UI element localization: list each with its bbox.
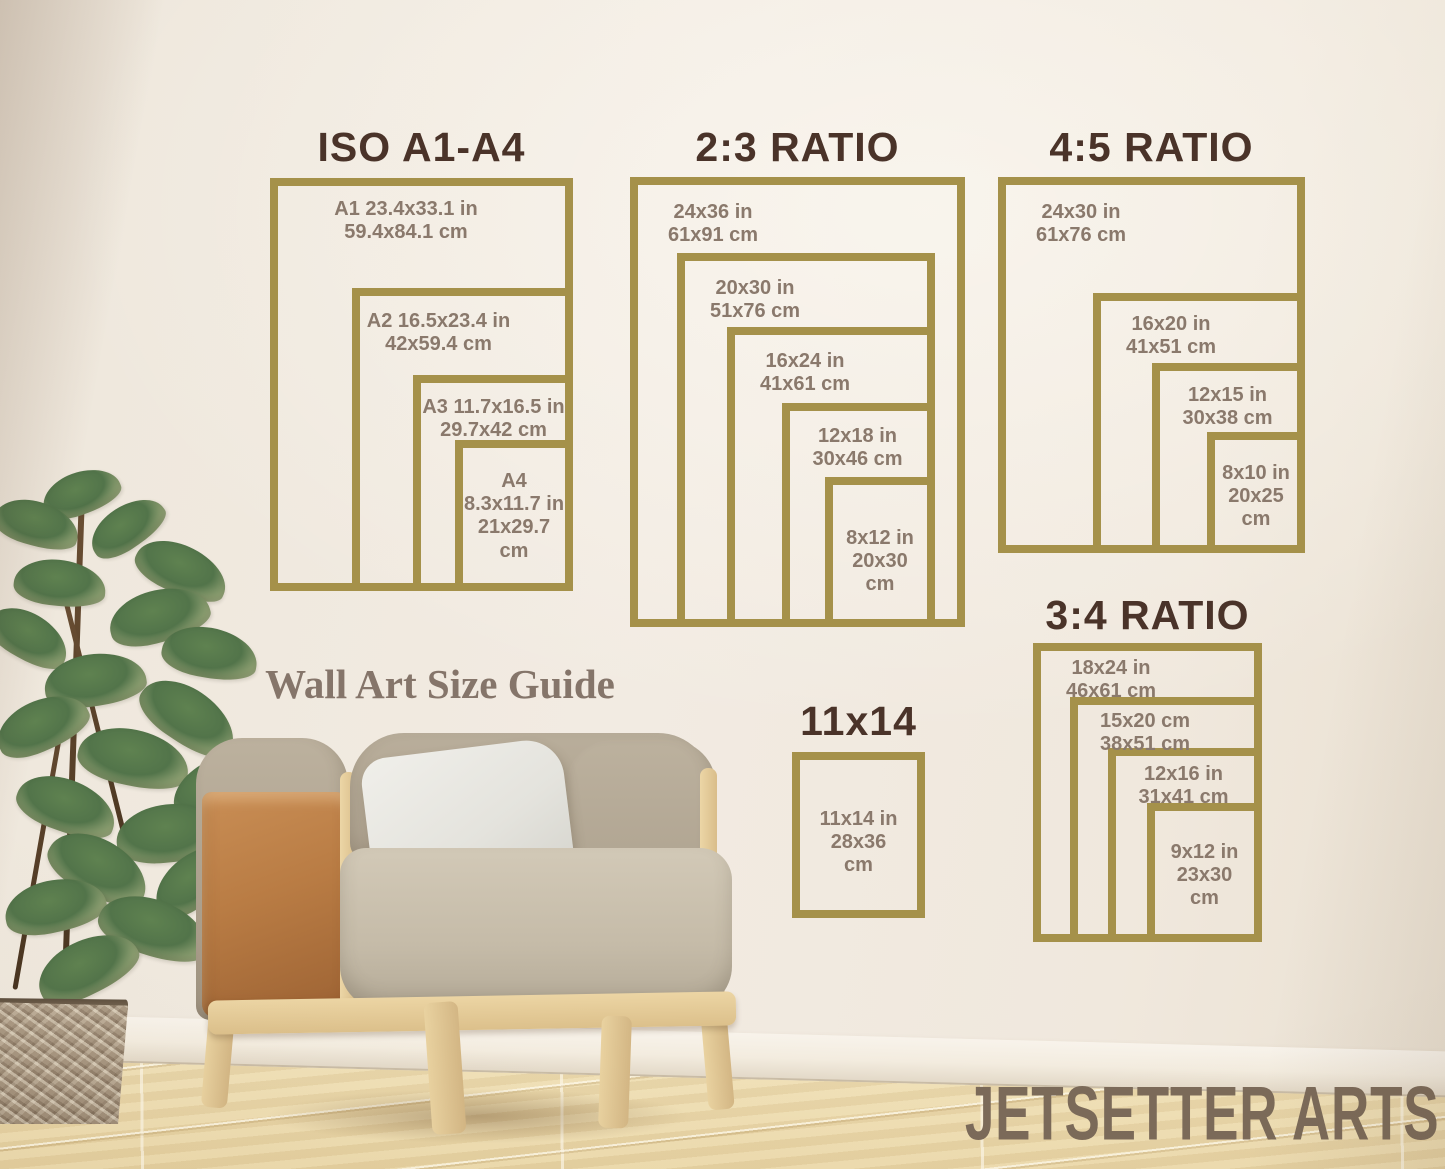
size-label-line: 46x61 cm bbox=[1046, 680, 1176, 703]
size-label-16x20: 16x20 in 41x51 cm bbox=[1106, 313, 1236, 359]
size-label-9x12: 9x12 in 23x30 cm bbox=[1149, 841, 1260, 911]
size-label-12x15: 12x15 in 30x38 cm bbox=[1160, 384, 1295, 430]
size-label-a4: A4 8.3x11.7 in 21x29.7 cm bbox=[457, 470, 571, 563]
size-label-line: cm bbox=[1149, 887, 1260, 910]
size-label-line: A3 11.7x16.5 in bbox=[416, 396, 571, 419]
size-label-15x20: 15x20 cm 38x51 cm bbox=[1080, 710, 1210, 756]
size-label-line: A4 bbox=[457, 470, 571, 493]
size-label-line: 8.3x11.7 in bbox=[457, 493, 571, 516]
size-label-line: cm bbox=[827, 573, 933, 596]
size-label-line: 16x24 in bbox=[740, 350, 870, 373]
potted-plant bbox=[0, 462, 326, 1142]
section-heading-4-5: 4:5 RATIO bbox=[998, 124, 1305, 171]
size-label-line: 42x59.4 cm bbox=[356, 333, 521, 356]
size-label-line: 41x61 cm bbox=[740, 373, 870, 396]
size-label-line: 21x29.7 bbox=[457, 516, 571, 539]
size-label-line: A1 23.4x33.1 in bbox=[286, 198, 526, 221]
size-label-18x24: 18x24 in 46x61 cm bbox=[1046, 657, 1176, 703]
size-label-line: 41x51 cm bbox=[1106, 336, 1236, 359]
size-label-a1: A1 23.4x33.1 in 59.4x84.1 cm bbox=[286, 198, 526, 244]
size-label-line: 28x36 bbox=[794, 831, 923, 854]
room-scene: ISO A1-A4 A1 23.4x33.1 in 59.4x84.1 cm A… bbox=[0, 0, 1445, 1169]
size-label-line: 30x38 cm bbox=[1160, 407, 1295, 430]
size-label-line: 12x18 in bbox=[790, 425, 925, 448]
size-label-line: 24x36 in bbox=[648, 201, 778, 224]
size-label-line: 24x30 in bbox=[1016, 201, 1146, 224]
size-label-24x36: 24x36 in 61x91 cm bbox=[648, 201, 778, 247]
size-label-line: 15x20 cm bbox=[1080, 710, 1210, 733]
size-label-line: 61x91 cm bbox=[648, 224, 778, 247]
size-label-line: 9x12 in bbox=[1149, 841, 1260, 864]
size-label-12x16: 12x16 in 31x41 cm bbox=[1116, 763, 1251, 809]
size-label-line: 23x30 bbox=[1149, 864, 1260, 887]
size-label-line: 8x12 in bbox=[827, 527, 933, 550]
plant-basket bbox=[0, 1002, 128, 1124]
size-label-line: 51x76 cm bbox=[690, 300, 820, 323]
section-heading-2-3: 2:3 RATIO bbox=[630, 124, 965, 171]
size-label-a3: A3 11.7x16.5 in 29.7x42 cm bbox=[416, 396, 571, 442]
size-label-line: 59.4x84.1 cm bbox=[286, 221, 526, 244]
size-label-line: 20x30 in bbox=[690, 277, 820, 300]
size-label-a2: A2 16.5x23.4 in 42x59.4 cm bbox=[356, 310, 521, 356]
section-heading-iso: ISO A1-A4 bbox=[270, 124, 573, 171]
size-label-8x12: 8x12 in 20x30 cm bbox=[827, 527, 933, 597]
size-label-line: 38x51 cm bbox=[1080, 733, 1210, 756]
size-label-line: 20x30 bbox=[827, 550, 933, 573]
size-label-20x30: 20x30 in 51x76 cm bbox=[690, 277, 820, 323]
size-label-line: 61x76 cm bbox=[1016, 224, 1146, 247]
size-label-line: 29.7x42 cm bbox=[416, 419, 571, 442]
size-label-line: 18x24 in bbox=[1046, 657, 1176, 680]
size-label-line: 31x41 cm bbox=[1116, 786, 1251, 809]
size-label-line: 11x14 in bbox=[794, 808, 923, 831]
brand-logo: JETSETTER ARTS bbox=[964, 1070, 1439, 1157]
size-label-8x10: 8x10 in 20x25 cm bbox=[1209, 462, 1303, 532]
size-label-line: cm bbox=[1209, 508, 1303, 531]
size-label-24x30: 24x30 in 61x76 cm bbox=[1016, 201, 1146, 247]
size-label-line: 16x20 in bbox=[1106, 313, 1236, 336]
size-label-16x24: 16x24 in 41x61 cm bbox=[740, 350, 870, 396]
size-label-line: 30x46 cm bbox=[790, 448, 925, 471]
size-label-line: 20x25 bbox=[1209, 485, 1303, 508]
size-label-11x14: 11x14 in 28x36 cm bbox=[794, 808, 923, 878]
size-label-line: 12x15 in bbox=[1160, 384, 1295, 407]
size-label-line: A2 16.5x23.4 in bbox=[356, 310, 521, 333]
size-label-line: 12x16 in bbox=[1116, 763, 1251, 786]
section-heading-3-4: 3:4 RATIO bbox=[1033, 592, 1262, 639]
size-label-line: cm bbox=[794, 854, 923, 877]
size-label-line: cm bbox=[457, 540, 571, 563]
section-heading-11x14: 11x14 bbox=[792, 698, 925, 745]
size-label-line: 8x10 in bbox=[1209, 462, 1303, 485]
size-label-12x18: 12x18 in 30x46 cm bbox=[790, 425, 925, 471]
